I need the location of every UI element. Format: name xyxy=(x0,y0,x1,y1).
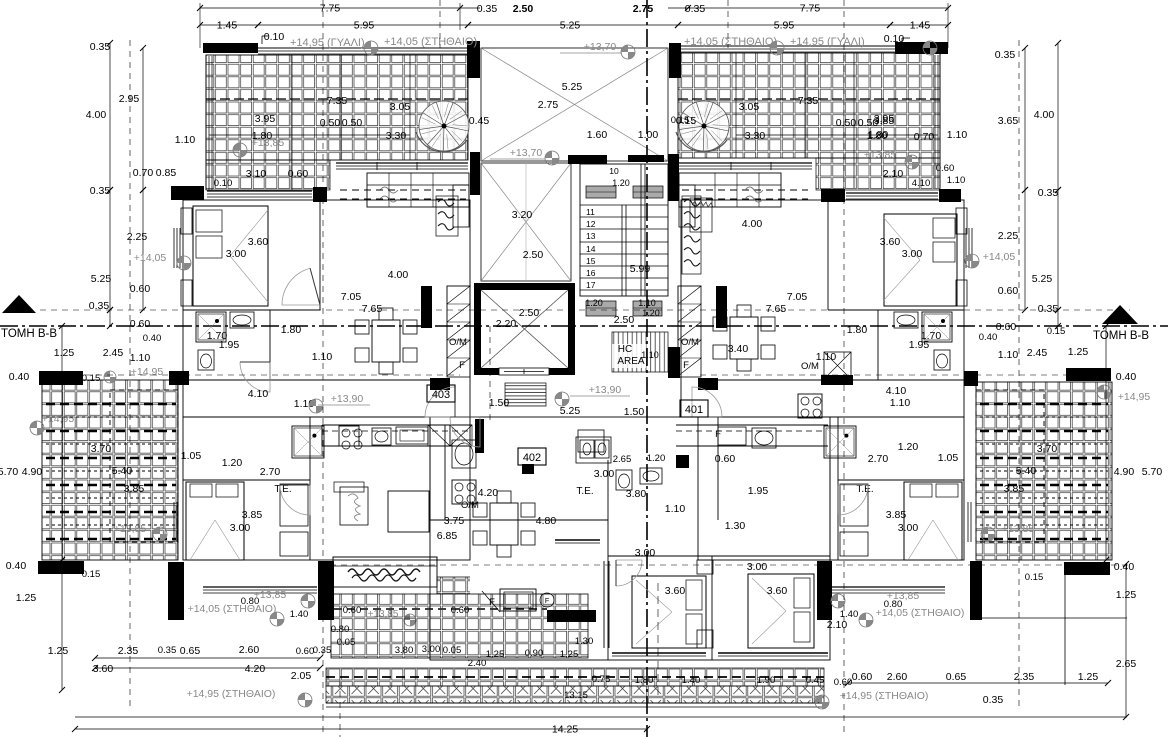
svg-text:+14,95 (ΣΤΗΘΑΙΟ): +14,95 (ΣΤΗΘΑΙΟ) xyxy=(187,688,276,700)
svg-text:3.65: 3.65 xyxy=(998,115,1019,127)
svg-text:2.50: 2.50 xyxy=(523,249,544,261)
svg-text:12: 12 xyxy=(586,219,596,229)
svg-text:5.70: 5.70 xyxy=(1142,466,1163,478)
svg-text:2.50: 2.50 xyxy=(614,314,635,326)
svg-text:0.40: 0.40 xyxy=(6,560,27,572)
svg-text:5.95: 5.95 xyxy=(774,20,795,32)
svg-text:0.40: 0.40 xyxy=(9,371,30,383)
svg-text:7.05: 7.05 xyxy=(787,291,808,303)
svg-text:1.10: 1.10 xyxy=(665,503,686,515)
svg-text:0.60: 0.60 xyxy=(998,285,1019,297)
svg-text:0.60: 0.60 xyxy=(130,283,151,295)
svg-text:0.80: 0.80 xyxy=(331,624,350,635)
svg-text:0.60: 0.60 xyxy=(834,677,853,688)
svg-text:13.15: 13.15 xyxy=(564,690,588,701)
svg-text:5.25: 5.25 xyxy=(560,20,581,32)
svg-text:1.80: 1.80 xyxy=(635,675,654,686)
svg-text:TOMH B-B: TOMH B-B xyxy=(1093,330,1149,342)
svg-text:+14,05 (ΣΤΗΘΑΙΟ): +14,05 (ΣΤΗΘΑΙΟ) xyxy=(188,603,277,615)
svg-text:7.05: 7.05 xyxy=(341,291,362,303)
svg-text:+14,95 (ΣΤΗΘΑΙΟ): +14,95 (ΣΤΗΘΑΙΟ) xyxy=(840,690,929,702)
svg-text:1.10: 1.10 xyxy=(947,175,966,186)
svg-text:0.85: 0.85 xyxy=(156,167,177,179)
svg-text:4.20: 4.20 xyxy=(245,663,266,675)
svg-text:1.80: 1.80 xyxy=(847,324,868,336)
svg-text:1.40: 1.40 xyxy=(290,609,309,620)
svg-text:0.60: 0.60 xyxy=(936,163,955,174)
svg-text:4.10: 4.10 xyxy=(886,385,907,397)
svg-text:+13,90: +13,90 xyxy=(589,384,622,396)
svg-text:1.45: 1.45 xyxy=(910,20,931,32)
svg-text:1.10: 1.10 xyxy=(130,352,151,364)
svg-text:+14,95: +14,95 xyxy=(131,366,164,378)
svg-text:1.10: 1.10 xyxy=(890,397,911,409)
svg-text:1.10: 1.10 xyxy=(641,350,659,360)
svg-text:5.25: 5.25 xyxy=(1032,273,1053,285)
svg-text:3.30: 3.30 xyxy=(745,130,766,142)
svg-text:3.40: 3.40 xyxy=(728,343,749,355)
svg-text:T.E.: T.E. xyxy=(274,484,291,495)
svg-text:5.25: 5.25 xyxy=(560,405,581,417)
svg-text:0.45: 0.45 xyxy=(469,115,490,127)
svg-text:1.25: 1.25 xyxy=(1078,671,1099,683)
svg-text:3.00: 3.00 xyxy=(747,561,768,573)
svg-text:0.10: 0.10 xyxy=(264,31,285,43)
svg-text:0.60: 0.60 xyxy=(296,646,315,657)
svg-text:1.80: 1.80 xyxy=(867,130,888,142)
svg-text:3.00: 3.00 xyxy=(635,547,656,559)
svg-text:T.E.: T.E. xyxy=(576,486,593,497)
svg-text:0.60: 0.60 xyxy=(288,168,309,180)
svg-text:401: 401 xyxy=(685,404,703,416)
svg-text:1.60: 1.60 xyxy=(587,129,608,141)
svg-text:11: 11 xyxy=(586,207,595,217)
svg-text:3.70: 3.70 xyxy=(91,443,112,455)
svg-text:2.75: 2.75 xyxy=(538,99,559,111)
svg-text:2.65: 2.65 xyxy=(613,454,632,465)
svg-text:5.25: 5.25 xyxy=(562,81,583,93)
svg-text:1.80: 1.80 xyxy=(252,130,273,142)
svg-text:T.E.: T.E. xyxy=(856,484,873,495)
svg-text:3.85: 3.85 xyxy=(886,509,907,521)
svg-text:+13,90: +13,90 xyxy=(331,393,364,405)
svg-text:3.00: 3.00 xyxy=(230,522,251,534)
svg-text:0.90: 0.90 xyxy=(525,648,544,659)
svg-text:2.20: 2.20 xyxy=(496,318,517,330)
svg-text:1.10: 1.10 xyxy=(998,349,1019,361)
svg-text:3.05: 3.05 xyxy=(739,101,760,113)
svg-text:0.35: 0.35 xyxy=(158,645,177,656)
svg-text:3.00: 3.00 xyxy=(594,468,615,480)
svg-text:0.75: 0.75 xyxy=(592,674,611,685)
svg-text:0.40: 0.40 xyxy=(979,332,998,343)
svg-text:1.30: 1.30 xyxy=(575,636,594,647)
svg-text:0.50: 0.50 xyxy=(342,117,363,129)
svg-text:3.05: 3.05 xyxy=(390,101,411,113)
svg-text:10: 10 xyxy=(609,166,619,176)
svg-text:3.60: 3.60 xyxy=(767,585,788,597)
svg-text:5.70: 5.70 xyxy=(0,466,18,478)
svg-text:17: 17 xyxy=(586,280,596,290)
svg-text:0.65: 0.65 xyxy=(946,671,967,683)
svg-text:1.20: 1.20 xyxy=(585,298,603,308)
svg-text:0.70: 0.70 xyxy=(133,167,154,179)
svg-text:5.40: 5.40 xyxy=(112,465,133,477)
svg-text:0.40: 0.40 xyxy=(1114,561,1135,573)
svg-text:2.60: 2.60 xyxy=(239,644,260,656)
svg-text:0.05: 0.05 xyxy=(443,645,462,656)
svg-text:1.20: 1.20 xyxy=(642,308,660,318)
svg-text:3.85: 3.85 xyxy=(1004,483,1025,495)
svg-text:6.85: 6.85 xyxy=(437,530,458,542)
svg-text:2.95: 2.95 xyxy=(119,93,140,105)
svg-text:+14,05: +14,05 xyxy=(134,252,167,264)
svg-text:3.80: 3.80 xyxy=(395,645,414,656)
svg-text:2.40: 2.40 xyxy=(468,658,487,669)
svg-text:2.05: 2.05 xyxy=(291,670,312,682)
svg-text:2.35: 2.35 xyxy=(1014,671,1035,683)
svg-text:4.20: 4.20 xyxy=(478,487,499,499)
svg-text:2.60: 2.60 xyxy=(887,671,908,683)
svg-text:3.00: 3.00 xyxy=(898,522,919,534)
svg-text:16: 16 xyxy=(586,268,596,278)
svg-text:14: 14 xyxy=(586,244,596,254)
svg-text:1.10: 1.10 xyxy=(947,129,968,141)
svg-text:3.10: 3.10 xyxy=(246,168,267,180)
svg-text:402: 402 xyxy=(523,452,541,464)
svg-text:+14,05: +14,05 xyxy=(983,251,1016,263)
svg-text:2.70: 2.70 xyxy=(868,453,889,465)
svg-text:0.60: 0.60 xyxy=(715,453,736,465)
svg-text:1.50: 1.50 xyxy=(624,406,645,418)
svg-text:+14,05 (ΣΤΗΘΑΙΟ): +14,05 (ΣΤΗΘΑΙΟ) xyxy=(684,36,777,48)
svg-text:403: 403 xyxy=(432,389,450,401)
svg-text:+14,95 (ΓΥΑΛΙ): +14,95 (ΓΥΑΛΙ) xyxy=(790,36,865,48)
svg-text:1.95: 1.95 xyxy=(909,339,930,351)
svg-text:3.00: 3.00 xyxy=(902,248,923,260)
svg-text:3.60: 3.60 xyxy=(665,585,686,597)
svg-text:O/M: O/M xyxy=(449,337,467,348)
svg-text:2.35: 2.35 xyxy=(118,645,139,657)
svg-text:3.85: 3.85 xyxy=(242,509,263,521)
svg-text:+13,70: +13,70 xyxy=(584,41,617,53)
svg-text:0.10: 0.10 xyxy=(884,33,905,45)
svg-text:1.20: 1.20 xyxy=(222,457,243,469)
svg-text:2.10: 2.10 xyxy=(883,168,904,180)
svg-text:O/M: O/M xyxy=(681,337,699,348)
svg-text:3.00: 3.00 xyxy=(226,248,247,260)
svg-text:2.75: 2.75 xyxy=(633,3,654,15)
svg-text:F: F xyxy=(683,360,689,371)
svg-text:1.10: 1.10 xyxy=(175,134,196,146)
svg-text:1.25: 1.25 xyxy=(54,347,75,359)
svg-text:1.25: 1.25 xyxy=(16,592,37,604)
svg-text:4.90: 4.90 xyxy=(22,466,43,478)
svg-text:3.30: 3.30 xyxy=(386,130,407,142)
svg-text:+13,70: +13,70 xyxy=(510,147,543,159)
svg-text:3.60: 3.60 xyxy=(880,236,901,248)
svg-text:1.25: 1.25 xyxy=(1068,346,1089,358)
svg-text:1.80: 1.80 xyxy=(281,324,302,336)
svg-text:0.45: 0.45 xyxy=(806,675,825,686)
svg-text:O/M: O/M xyxy=(461,500,479,511)
svg-text:+14,95: +14,95 xyxy=(42,413,75,425)
svg-text:0.70: 0.70 xyxy=(914,131,935,143)
svg-text:+13,85: +13,85 xyxy=(1002,523,1035,535)
svg-text:5.25: 5.25 xyxy=(91,273,112,285)
svg-text:0.35: 0.35 xyxy=(90,185,111,197)
svg-text:1.10: 1.10 xyxy=(816,351,837,363)
svg-text:1.90: 1.90 xyxy=(757,675,776,686)
svg-text:3.60: 3.60 xyxy=(93,663,114,675)
svg-text:4.00: 4.00 xyxy=(86,109,107,121)
svg-text:3.85: 3.85 xyxy=(124,483,145,495)
svg-text:2.50: 2.50 xyxy=(513,3,534,15)
svg-text:3.20: 3.20 xyxy=(512,209,533,221)
svg-text:15: 15 xyxy=(586,256,596,266)
svg-text:1.25: 1.25 xyxy=(486,649,505,660)
svg-text:7.65: 7.65 xyxy=(362,303,383,315)
svg-text:0.35: 0.35 xyxy=(983,694,1004,706)
svg-text:0.15: 0.15 xyxy=(1025,572,1044,583)
svg-text:4.10: 4.10 xyxy=(248,388,269,400)
svg-text:0.15: 0.15 xyxy=(82,569,101,580)
svg-text:0.40: 0.40 xyxy=(143,333,162,344)
svg-text:2.45: 2.45 xyxy=(103,347,124,359)
svg-text:2.50: 2.50 xyxy=(519,307,540,319)
svg-text:4.90: 4.90 xyxy=(1114,466,1135,478)
svg-text:F: F xyxy=(545,598,549,605)
svg-text:1.25: 1.25 xyxy=(48,645,69,657)
svg-text:7.35: 7.35 xyxy=(327,95,348,107)
svg-text:+14,05 (ΣΤΗΘΑΙΟ): +14,05 (ΣΤΗΘΑΙΟ) xyxy=(384,36,477,48)
svg-text:1.05: 1.05 xyxy=(938,452,959,464)
svg-text:0.35: 0.35 xyxy=(685,3,706,15)
svg-text:1.00: 1.00 xyxy=(638,129,659,141)
svg-text:0.50: 0.50 xyxy=(858,117,879,129)
svg-text:2.70: 2.70 xyxy=(260,466,281,478)
svg-text:7.35: 7.35 xyxy=(798,95,819,107)
svg-text:0.05: 0.05 xyxy=(337,637,356,648)
svg-text:0.15: 0.15 xyxy=(82,373,101,384)
svg-text:0.50: 0.50 xyxy=(836,117,857,129)
svg-text:1.05: 1.05 xyxy=(181,450,202,462)
svg-text:0.35: 0.35 xyxy=(313,645,332,656)
svg-text:0.35: 0.35 xyxy=(90,41,111,53)
svg-text:0.10: 0.10 xyxy=(214,178,233,189)
svg-text:1.50: 1.50 xyxy=(489,397,510,409)
svg-text:+13,85: +13,85 xyxy=(864,149,897,161)
svg-text:7.75: 7.75 xyxy=(800,3,821,15)
svg-text:3.95: 3.95 xyxy=(255,113,276,125)
svg-text:13: 13 xyxy=(586,231,596,241)
svg-text:1.95: 1.95 xyxy=(219,339,240,351)
svg-text:0.80: 0.80 xyxy=(884,599,903,610)
svg-text:1.40: 1.40 xyxy=(682,675,701,686)
svg-text:5.95: 5.95 xyxy=(354,20,375,32)
svg-text:4.10: 4.10 xyxy=(912,178,931,189)
svg-text:4.00: 4.00 xyxy=(1034,109,1055,121)
svg-text:1.95: 1.95 xyxy=(748,485,769,497)
svg-text:0.35: 0.35 xyxy=(995,49,1016,61)
svg-text:0.60: 0.60 xyxy=(996,321,1017,333)
svg-text:TOMH B-B: TOMH B-B xyxy=(1,328,57,340)
svg-text:14.25: 14.25 xyxy=(552,724,578,736)
svg-text:HC: HC xyxy=(618,344,632,355)
svg-text:3.75: 3.75 xyxy=(444,515,465,527)
svg-text:3.00: 3.00 xyxy=(422,644,441,655)
svg-text:7.65: 7.65 xyxy=(766,303,787,315)
svg-text:1.20: 1.20 xyxy=(647,453,666,464)
svg-text:1.40: 1.40 xyxy=(840,609,859,620)
svg-text:1.20: 1.20 xyxy=(898,441,919,453)
svg-text:0.60: 0.60 xyxy=(852,671,873,683)
svg-text:0.60: 0.60 xyxy=(130,318,151,330)
svg-text:3.60: 3.60 xyxy=(248,236,269,248)
svg-text:+14,95: +14,95 xyxy=(1118,391,1151,403)
svg-text:0.35: 0.35 xyxy=(477,3,498,15)
svg-text:2.25: 2.25 xyxy=(998,230,1019,242)
svg-text:2.45: 2.45 xyxy=(1027,347,1048,359)
svg-text:1.25: 1.25 xyxy=(560,649,579,660)
svg-text:F: F xyxy=(459,360,465,371)
svg-text:1.30: 1.30 xyxy=(725,520,746,532)
svg-text:0.15: 0.15 xyxy=(671,115,690,126)
svg-text:0.40: 0.40 xyxy=(1116,371,1137,383)
svg-text:3.70: 3.70 xyxy=(1037,443,1058,455)
svg-text:0.35: 0.35 xyxy=(1038,187,1059,199)
svg-text:1.20: 1.20 xyxy=(612,178,630,188)
svg-text:+14,95 (ΓΥΑΛΙ): +14,95 (ΓΥΑΛΙ) xyxy=(290,37,365,49)
svg-text:0.65: 0.65 xyxy=(180,645,201,657)
svg-text:4.00: 4.00 xyxy=(742,218,763,230)
svg-text:4.80: 4.80 xyxy=(536,515,557,527)
svg-text:0.35: 0.35 xyxy=(1038,303,1059,315)
svg-text:1.45: 1.45 xyxy=(217,20,238,32)
svg-text:4.00: 4.00 xyxy=(388,269,409,281)
svg-text:0.15: 0.15 xyxy=(1047,326,1066,337)
svg-text:1.10: 1.10 xyxy=(312,351,333,363)
